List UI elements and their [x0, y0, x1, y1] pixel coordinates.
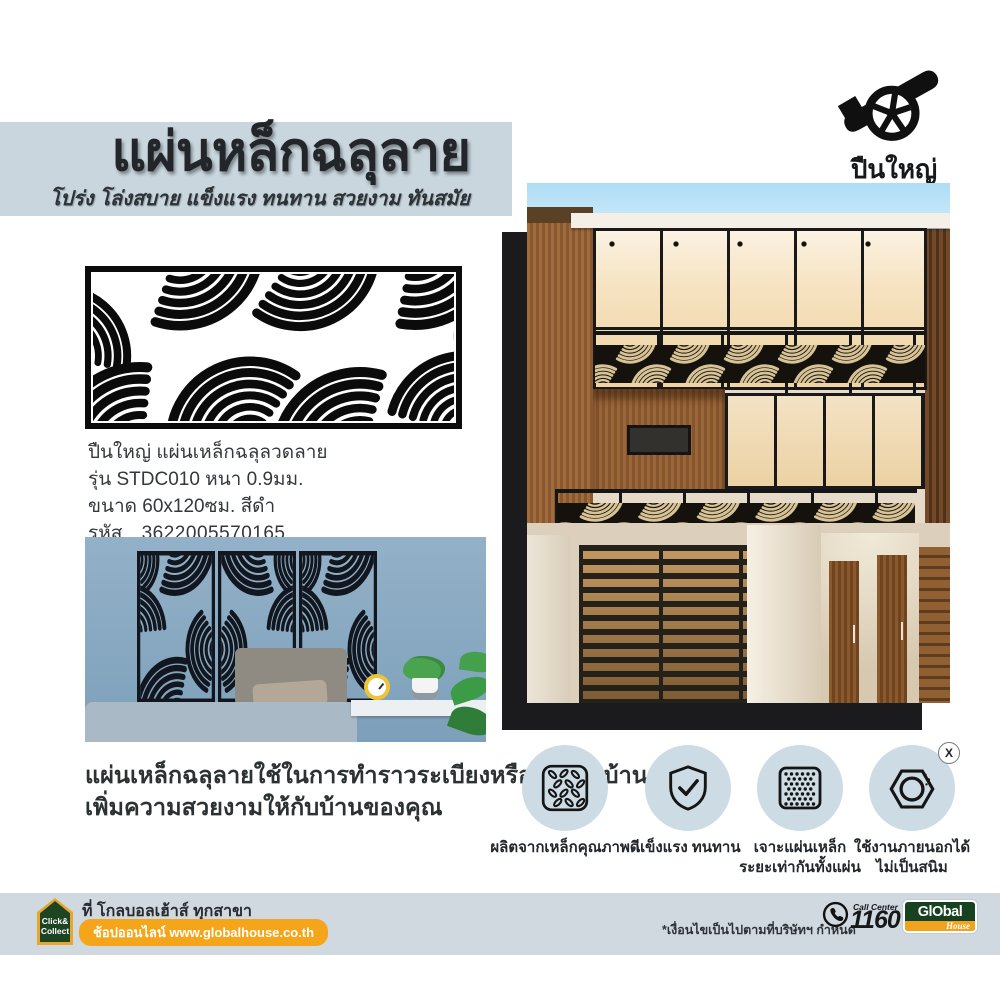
phone-icon: [822, 901, 849, 928]
online-shop-link[interactable]: ช้อปออนไลน์ www.globalhouse.co.th: [79, 919, 328, 946]
small-window: [627, 425, 691, 455]
global-house-wordmark: GlObal: [905, 902, 975, 921]
ground-floor: [527, 523, 950, 703]
feature-label: ไม่เป็นสนิม: [830, 858, 994, 878]
pillar: [527, 535, 571, 703]
rustproof-nut-icon: [885, 761, 939, 815]
flyer-page: แผ่นหล็กฉลุลาย โปร่ง โล่งสบาย แข็งแรง ทน…: [0, 0, 1000, 1000]
click-and-collect-badge: Click& Collect: [37, 898, 73, 945]
product-size: ขนาด 60x120ซม. สีดำ: [88, 494, 328, 521]
building-render-image: [527, 183, 950, 703]
wood-fence: [919, 547, 950, 703]
feature-label: ใช้งานภายนอกได้: [830, 838, 994, 858]
product-info: ปืนใหญ่ แผ่นเหล็กฉลุลวดลาย รุ่น STDC010 …: [88, 440, 328, 548]
entryway: [821, 533, 919, 703]
lower-glass-wall: [725, 393, 925, 489]
wood-door: [877, 555, 907, 703]
feature-circle: X: [869, 745, 955, 831]
page-subtitle: โปร่ง โล่งสบาย แข็งแรง ทนทาน สวยงาม ทันส…: [50, 182, 470, 214]
product-name: ปืนใหญ่ แผ่นเหล็กฉลุลวดลาย: [88, 440, 328, 467]
checker-plate-icon: [538, 761, 592, 815]
page-title: แผ่นหล็กฉลุลาย: [111, 124, 470, 181]
click-collect-text: Collect: [41, 927, 69, 937]
cannon-icon: [832, 50, 956, 148]
perforated-plate-icon: [774, 762, 826, 814]
metal-gate: [579, 545, 747, 703]
feature-rustproof: X ใช้งานภายนอกได้ ไม่เป็นสนิม: [830, 745, 994, 877]
roof-fascia: [571, 213, 950, 228]
no-rust-x-badge: X: [938, 742, 960, 764]
product-model: รุ่น STDC010 หนา 0.9มม.: [88, 467, 328, 494]
global-house-logo: GlObal House: [903, 900, 977, 933]
pillar: [747, 525, 821, 703]
balcony-railing: [593, 331, 927, 393]
global-house-script: House: [905, 921, 975, 931]
feature-circle: [522, 745, 608, 831]
brand-logo: ปืนใหญ่: [826, 50, 962, 190]
sofa: [85, 702, 357, 742]
wood-door: [829, 561, 859, 703]
plant-leaf: [459, 650, 486, 675]
product-panel-image: [85, 266, 462, 429]
plant-pot: [412, 678, 438, 700]
call-center-number: 1160: [850, 906, 900, 935]
shield-check-icon: [663, 762, 713, 814]
room-scene-image: [85, 537, 486, 742]
title-band: แผ่นหล็กฉลุลาย โปร่ง โล่งสบาย แข็งแรง ทน…: [0, 122, 512, 216]
clock: [364, 674, 390, 700]
